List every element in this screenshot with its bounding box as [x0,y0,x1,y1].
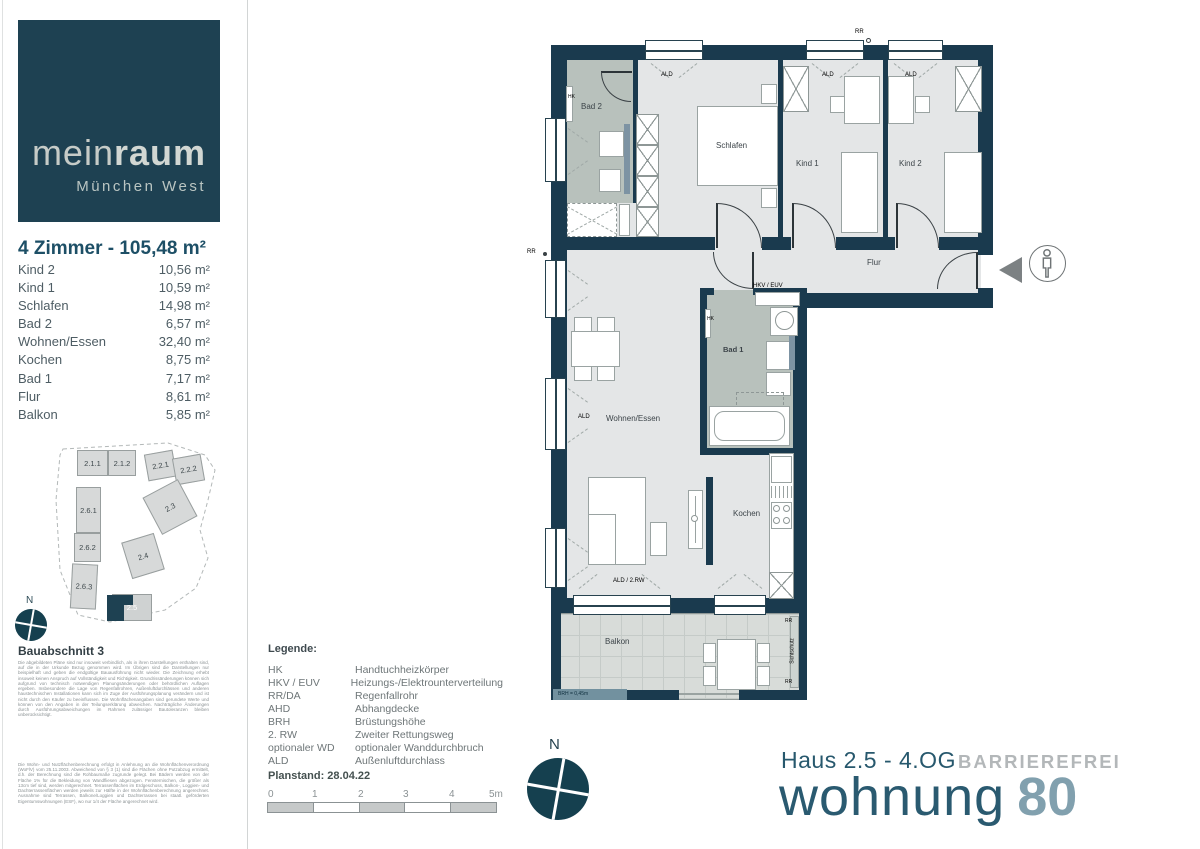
wall [700,288,714,295]
balcony-wall [739,690,807,700]
wardrobe-icon [783,66,809,112]
sofa-line [615,514,616,564]
room-name: Bad 1 [18,371,52,389]
legend-row: optionaler WDoptionaler Wanddurchbruch [268,742,503,755]
building-label: 2.3 [163,501,176,514]
rr-label: RR [785,618,792,624]
legend-desc: Abhangdecke [355,703,419,716]
rr-label: RR [785,679,792,685]
room-area: 5,85 m² [166,407,210,425]
scale-segment [450,802,497,813]
brand-thin: mein [32,132,114,173]
building-label: 2.1.2 [114,459,131,468]
compass-north-label: N [549,736,560,753]
legend-row: HKV / EUVHeizungs-/Elektrounterverteilun… [268,677,503,690]
room-label-kochen: Kochen [733,509,760,518]
dining-chair [574,366,592,381]
compass-icon [522,753,594,825]
building-label: 2.6.1 [80,506,97,515]
barrier-free-entrance-icon [1029,245,1066,282]
legend-abbr: ALD [268,755,355,768]
legend-desc: Zweiter Rettungsweg [355,729,454,742]
hk-label: HK [568,94,575,100]
wall [836,237,895,250]
window [545,378,566,450]
legend-row: RR/DARegenfallrohr [268,690,503,703]
legend-desc: Heizungs-/Elektrounterverteilung [351,677,503,690]
room-label-balkon: Balkon [605,637,629,646]
brand-bold: raum [114,132,206,173]
building-label: 2.6.2 [79,543,96,552]
legend: HKHandtuchheizkörper HKV / EUVHeizungs-/… [268,664,503,768]
room-area: 8,75 m² [166,352,210,370]
entrance-arrow-icon [999,257,1022,283]
legend-abbr: HK [268,664,355,677]
room-name: Wohnen/Essen [18,334,106,352]
siteplan-unit-marker [107,595,124,621]
room-label-wohnen-essen: Wohnen/Essen [606,414,660,423]
window [645,40,703,60]
room-area: 32,40 m² [159,334,210,352]
dining-chair [574,317,592,332]
desk [844,76,880,124]
brand-logo: meinraum München West [18,20,220,222]
floorplan-page: meinraum München West 4 Zimmer - 105,48 … [0,0,1200,849]
table-row: Kind 210,56 m² [18,262,210,280]
hkv-euv-label: HKV / EUV [753,283,783,289]
apartment-title: wohnung80 [779,766,1077,828]
room-label-bad2: Bad 2 [581,102,602,111]
window [545,528,566,588]
room-label-kind1: Kind 1 [796,159,819,168]
scale-segments [268,802,497,813]
legend-abbr: BRH [268,716,355,729]
balcony-chair [703,643,716,663]
disclaimer-paragraph-1: Die abgebildeten Pläne sind nur insoweit… [18,660,209,717]
balcony-chair [757,666,770,686]
wall [939,237,978,250]
window [806,40,864,60]
bathtub-basin [714,411,785,441]
room-area: 8,61 m² [166,389,210,407]
room-area-table: Kind 210,56 m² Kind 110,59 m² Schlafen14… [18,262,210,425]
room-name: Schlafen [18,298,69,316]
legend-desc: optionaler Wanddurchbruch [355,742,484,755]
legend-desc: Handtuchheizkörper [355,664,449,677]
scale-tick: 0 [268,789,274,800]
wardrobe-icon [636,176,659,207]
window [888,40,943,60]
kitchen-partition-wall [706,477,713,565]
rr-label: RR [527,249,536,255]
window [545,260,566,318]
kitchen-sink [771,456,792,483]
building-label: 2.6.3 [75,582,92,592]
legend-abbr: AHD [268,703,355,716]
room-name: Balkon [18,407,58,425]
legend-abbr: RR/DA [268,690,355,703]
legend-row: BRHBrüstungshöhe [268,716,503,729]
brand-subtitle: München West [76,178,206,195]
wardrobe-icon [636,114,659,145]
room-area: 7,17 m² [166,371,210,389]
siteplan-unit-marker [124,595,133,605]
pocket-door [619,204,630,236]
wall [793,300,807,613]
ald-label: ALD [661,72,673,78]
room-area: 10,59 m² [159,280,210,298]
room-area: 10,56 m² [159,262,210,280]
sink-drainer [771,486,792,498]
ald-label: ALD [822,72,834,78]
scale-segment [404,802,451,813]
apartment-summary-title: 4 Zimmer - 105,48 m² [18,238,206,260]
scale-tick: 1 [312,789,318,800]
apartment-number: 80 [1017,767,1077,827]
table-row: Schlafen14,98 m² [18,298,210,316]
desk [888,76,914,124]
burner-icon [783,517,790,524]
sofa-line [589,514,616,515]
window [714,595,766,615]
siteplan-building: 2.6.3 [70,563,98,609]
building-label: 2.4 [137,550,150,562]
room-name: Flur [18,389,40,407]
bauabschnitt-title: Bauabschnitt 3 [18,644,104,658]
ald-label: ALD [905,72,917,78]
siteplan-building: 2.6.1 [76,487,101,533]
room-name: Bad 2 [18,316,52,334]
balcony-chair [757,643,770,663]
balcony-railing [679,693,739,695]
shower-glass [789,336,795,370]
wall [762,237,791,250]
room-name: Kind 2 [18,262,55,280]
dining-chair [597,366,615,381]
legend-row: 2. RWZweiter Rettungsweg [268,729,503,742]
dining-chair [597,317,615,332]
burner-icon [773,505,780,512]
shower-glass [624,124,630,194]
nightstand [761,188,777,208]
table-row: Kochen8,75 m² [18,352,210,370]
balcony-wall [551,613,561,700]
scale-segment [267,802,314,813]
room-area: 6,57 m² [166,316,210,334]
table-row: Bad 26,57 m² [18,316,210,334]
scale-bar: 0 1 2 3 4 5m [268,789,497,815]
building-label: 2.2.1 [152,460,170,472]
wall [551,237,715,250]
toilet [599,169,621,192]
legend-desc: Außenluftdurchlass [355,755,445,768]
rr-label: RR [855,29,864,35]
room-area: 14,98 m² [159,298,210,316]
scale-tick: 2 [358,789,364,800]
siteplan-building: 2.1.1 [77,450,108,476]
balcony-chair [703,666,716,686]
compass-north-label: N [26,595,33,606]
compass-icon [12,606,49,643]
burner-icon [783,505,790,512]
siteplan-building: 2.6.2 [74,533,101,562]
balcony-table [717,639,756,690]
planstand-label: Planstand: 28.04.22 [268,770,370,782]
room-name: Kind 1 [18,280,55,298]
disclaimer-paragraph-2: Die Wohn- und Nutzflächenberechnung erfo… [18,762,209,804]
washing-machine-drum [775,311,794,330]
bathroom-sink [599,131,624,157]
desk-chair [830,96,845,113]
building-label: 2.2.2 [180,464,198,476]
wall [805,293,993,308]
table-row: Flur8,61 m² [18,389,210,407]
scale-segment [313,802,360,813]
scale-tick: 5m [489,789,503,800]
balcony-wall [799,613,807,700]
legend-abbr: optionaler WD [268,742,355,755]
legend-abbr: HKV / EUV [268,677,351,690]
building-label: 2.1.1 [84,459,101,468]
legend-row: AHDAbhangdecke [268,703,503,716]
wardrobe-icon [636,145,659,176]
nightstand [761,84,777,104]
legend-title: Legende: [268,643,317,655]
scale-tick: 3 [403,789,409,800]
legend-abbr: 2. RW [268,729,355,742]
legend-desc: Regenfallrohr [355,690,418,703]
table-row: Bad 17,17 m² [18,371,210,389]
wardrobe-icon [955,66,982,112]
room-label-bad1: Bad 1 [723,345,743,354]
window [545,118,566,182]
balcony-door-window [573,595,671,615]
sichtschutz-label: Sichtschutz [790,629,796,674]
hk-label: HK [707,316,714,322]
ald-label: ALD [578,414,590,420]
brand-wordmark: meinraum [32,132,206,174]
rr-marker [543,252,547,256]
apartment-title-word: wohnung [779,767,1005,827]
island-knob [691,515,698,522]
room-label-flur: Flur [867,258,881,267]
wardrobe-icon [636,207,659,237]
brh-label: BRH = 0,45m [558,691,588,697]
table-row: Kind 110,59 m² [18,280,210,298]
ald-2rw-label: ALD / 2.RW [613,578,645,584]
dining-table [571,331,620,367]
table-row: Wohnen/Essen32,40 m² [18,334,210,352]
page-left-edge [2,0,3,849]
scale-tick: 4 [449,789,455,800]
siteplan-building: 2.1.2 [108,450,136,476]
fridge-icon [769,572,794,599]
rr-marker [866,38,871,43]
room-name: Kochen [18,352,62,370]
towel-radiator [566,86,573,122]
coffee-table [650,522,667,556]
scale-segment [359,802,406,813]
table-row: Balkon5,85 m² [18,407,210,425]
desk-chair [915,96,930,113]
hkv-euv-box [755,292,800,306]
legend-row: ALDAußenluftdurchlass [268,755,503,768]
towel-radiator [705,309,711,338]
single-bed [944,152,982,233]
room-label-schlafen: Schlafen [716,141,747,150]
burner-icon [773,517,780,524]
single-bed [841,152,878,233]
sidebar-divider [247,0,248,849]
sofa [588,477,646,565]
legend-row: HKHandtuchheizkörper [268,664,503,677]
legend-desc: Brüstungshöhe [355,716,426,729]
room-label-kind2: Kind 2 [899,159,922,168]
